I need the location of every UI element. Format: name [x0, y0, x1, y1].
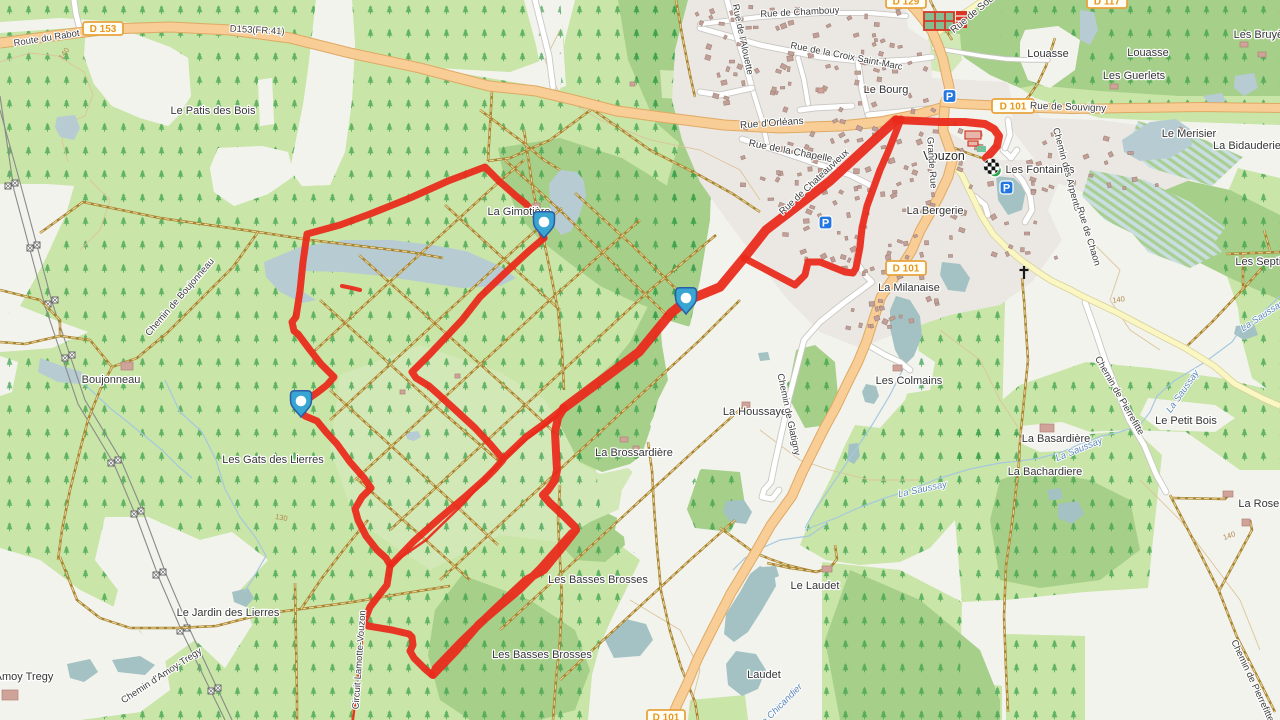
- svg-text:D 117: D 117: [1094, 0, 1121, 8]
- svg-text:P: P: [946, 91, 953, 103]
- svg-text:Le Petit Bois: Le Petit Bois: [1155, 415, 1217, 427]
- svg-text:140: 140: [1112, 294, 1126, 305]
- svg-text:Le Laudet: Le Laudet: [791, 580, 840, 592]
- svg-text:D 153: D 153: [90, 24, 117, 35]
- svg-text:P: P: [1003, 183, 1010, 195]
- svg-text:Amoy Tregy: Amoy Tregy: [0, 671, 54, 683]
- svg-text:Les Gats des Lierres: Les Gats des Lierres: [222, 454, 324, 466]
- svg-text:La Bachardiere: La Bachardiere: [1008, 466, 1083, 478]
- svg-text:Le Patis des Bois: Le Patis des Bois: [171, 105, 256, 117]
- svg-text:La Milanaise: La Milanaise: [878, 282, 940, 294]
- svg-text:D 101: D 101: [1000, 102, 1027, 113]
- svg-text:La Bergerie: La Bergerie: [907, 205, 964, 217]
- svg-text:Les Basses Brosses: Les Basses Brosses: [548, 574, 648, 586]
- svg-text:Laudet: Laudet: [747, 669, 781, 681]
- svg-text:La Brossardière: La Brossardière: [595, 447, 673, 459]
- svg-text:La Houssaye: La Houssaye: [723, 406, 787, 418]
- svg-text:Le Merisier: Le Merisier: [1162, 128, 1217, 140]
- svg-text:Le Bourg: Le Bourg: [864, 84, 909, 96]
- svg-text:La Roseraie: La Roseraie: [1238, 498, 1280, 510]
- svg-text:Boujonneau: Boujonneau: [82, 374, 141, 386]
- svg-text:Louasse: Louasse: [1027, 48, 1069, 60]
- svg-text:D 129: D 129: [893, 0, 920, 8]
- svg-text:P: P: [822, 218, 829, 230]
- svg-text:Les Septiers: Les Septiers: [1235, 256, 1280, 268]
- svg-text:Les Basses Brosses: Les Basses Brosses: [492, 649, 592, 661]
- svg-text:D 101: D 101: [893, 264, 920, 275]
- svg-text:Les Bruyères: Les Bruyères: [1234, 29, 1280, 41]
- svg-text:Louasse: Louasse: [1127, 47, 1169, 59]
- svg-text:La Bidauderie: La Bidauderie: [1213, 140, 1280, 152]
- svg-text:D 101: D 101: [653, 713, 680, 720]
- svg-text:Les Colmains: Les Colmains: [876, 375, 943, 387]
- svg-text:Le Jardin des Lierres: Le Jardin des Lierres: [177, 607, 280, 619]
- svg-text:Les Guerlets: Les Guerlets: [1103, 70, 1166, 82]
